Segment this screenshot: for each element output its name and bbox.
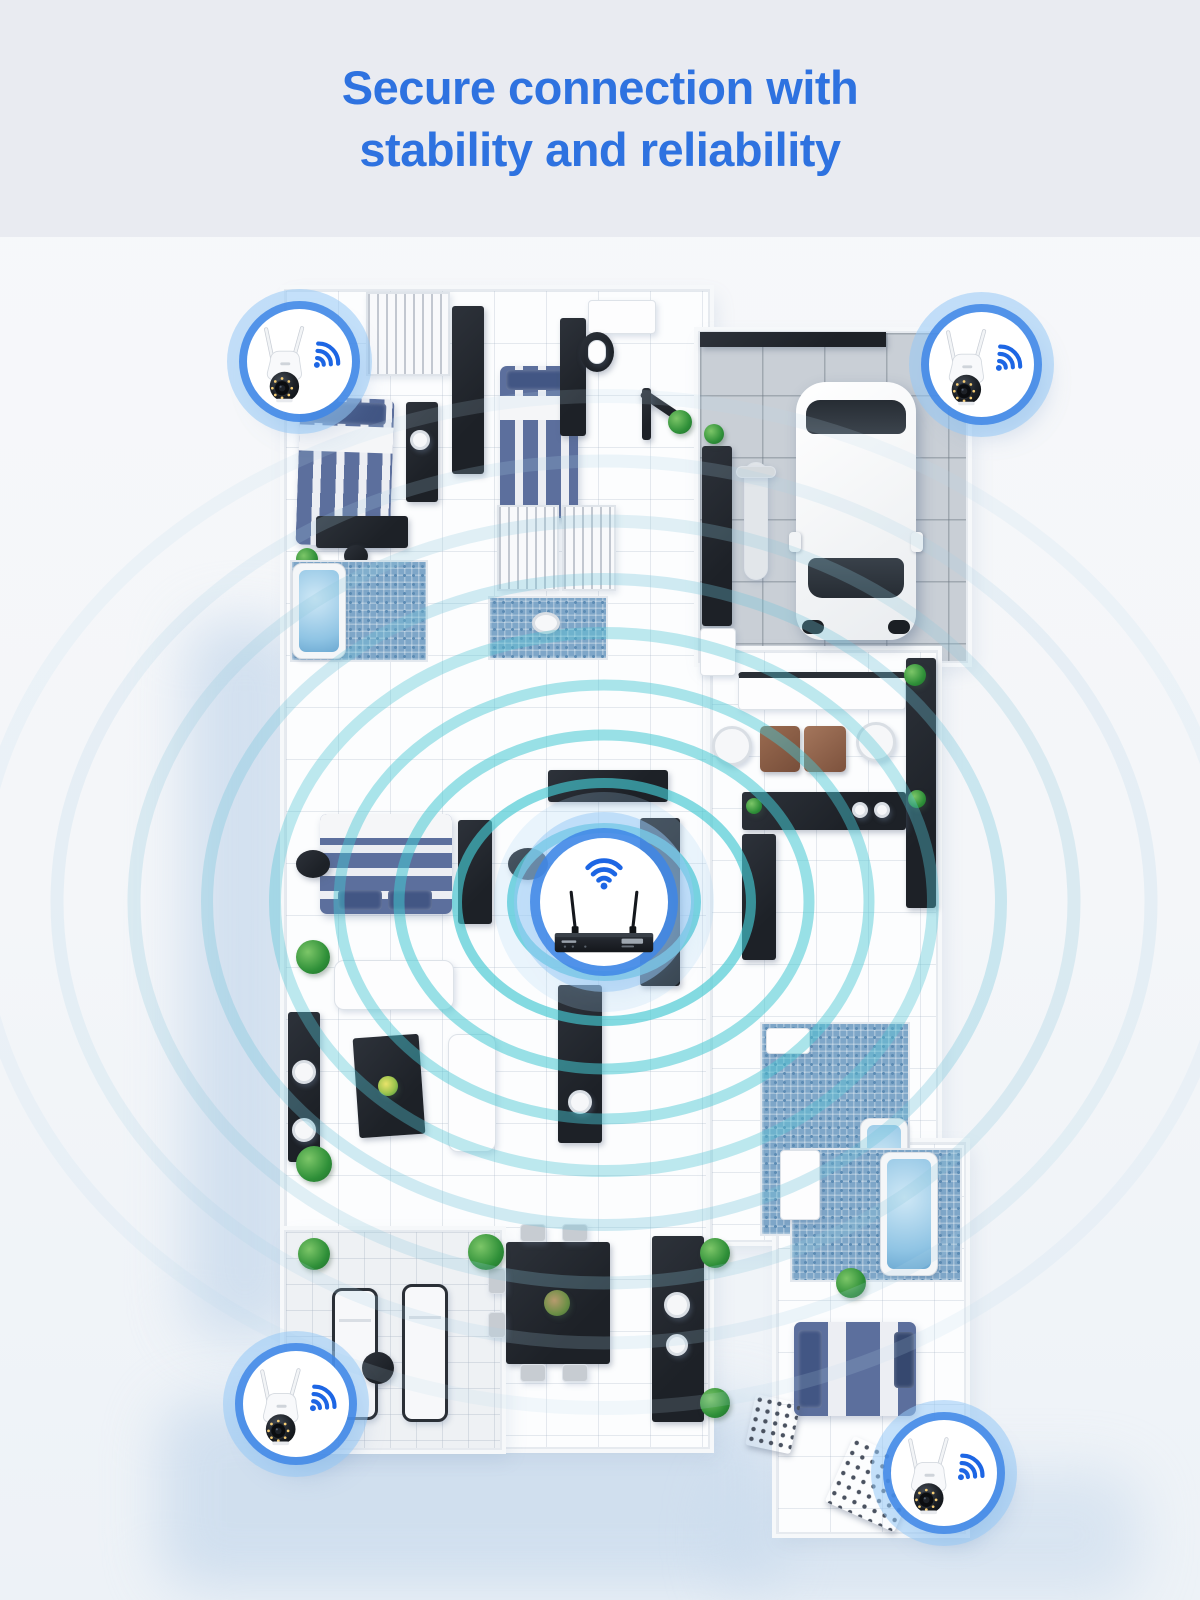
bathtub [880,1152,938,1276]
stool [410,430,430,450]
dining-chair [520,1224,546,1242]
plant [704,424,724,444]
motorcycle [744,462,768,580]
car [796,382,916,640]
garage-door-lintel [700,332,886,347]
ptz-camera [899,1431,958,1520]
chaise [448,1034,496,1152]
cooktop-burner [874,802,890,818]
plant [904,664,926,686]
ottoman [760,726,800,772]
sink-counter [766,1028,810,1054]
sink [666,1334,688,1356]
lounge-chair [402,1284,448,1422]
motorcycle-handlebar [736,466,776,478]
plant [908,790,926,808]
dining-chair [520,1364,546,1382]
wireless-nvr [550,882,658,961]
wardrobe [452,306,484,474]
dining-chair [488,1268,506,1294]
dresser [588,300,656,334]
drawer-cabinet [558,985,602,1143]
speaker [292,1060,316,1084]
workbench [702,446,732,626]
closet [366,292,450,376]
plant [468,1234,504,1270]
tv-stand [560,318,586,436]
camera-badge-bottom-right [891,1420,997,1526]
plant [668,410,692,434]
table-flower [378,1076,398,1096]
dining-chair [562,1224,588,1242]
plant [298,1238,330,1270]
bed [794,1322,916,1416]
armchair [856,722,896,762]
header-band: Secure connection with stability and rel… [0,0,1200,237]
nightstand [406,402,438,502]
armchair [712,726,752,766]
bed [320,814,452,914]
camera-badge-top-right [929,312,1034,417]
bowl [568,1090,592,1114]
vanity [780,1150,820,1220]
dining-chair [488,1312,506,1338]
desk [316,516,408,548]
ottoman [804,726,846,772]
sideboard [548,770,668,802]
patio-table [362,1352,394,1384]
closet [562,505,616,591]
dining-chair [562,1364,588,1382]
camera-badge-top-left [247,309,352,414]
garage-cabinet [700,628,736,676]
centerpiece [544,1290,570,1316]
nvr-hub-badge [540,838,668,966]
toilet [588,340,606,364]
cooktop-burner [852,802,868,818]
plant [700,1238,730,1268]
title-line-1: Secure connection with [342,61,859,114]
kitchen-counter-side [742,834,776,960]
nightstand [296,850,330,878]
plant [700,1388,730,1418]
sofa [334,960,454,1010]
plant [296,1146,332,1182]
camera-badge-bottom-left [243,1351,349,1457]
dresser [458,820,492,924]
shelf-column [906,658,936,908]
kitchen-island [652,1236,704,1422]
speaker [292,1118,316,1142]
sink [532,612,560,634]
page-title: Secure connection with stability and rel… [342,57,859,181]
ptz-camera [255,320,314,408]
plant [296,940,330,974]
plant [836,1268,866,1298]
sink [664,1292,690,1318]
kitchen-plant [746,798,762,814]
closet [497,505,559,591]
bathtub [292,563,346,659]
page: Secure connection with stability and rel… [0,0,1200,1600]
entry-door-frame [642,388,651,440]
title-line-2: stability and reliability [359,123,840,176]
bench-sofa [738,672,906,710]
ptz-camera [251,1362,310,1451]
ptz-camera [937,323,996,411]
